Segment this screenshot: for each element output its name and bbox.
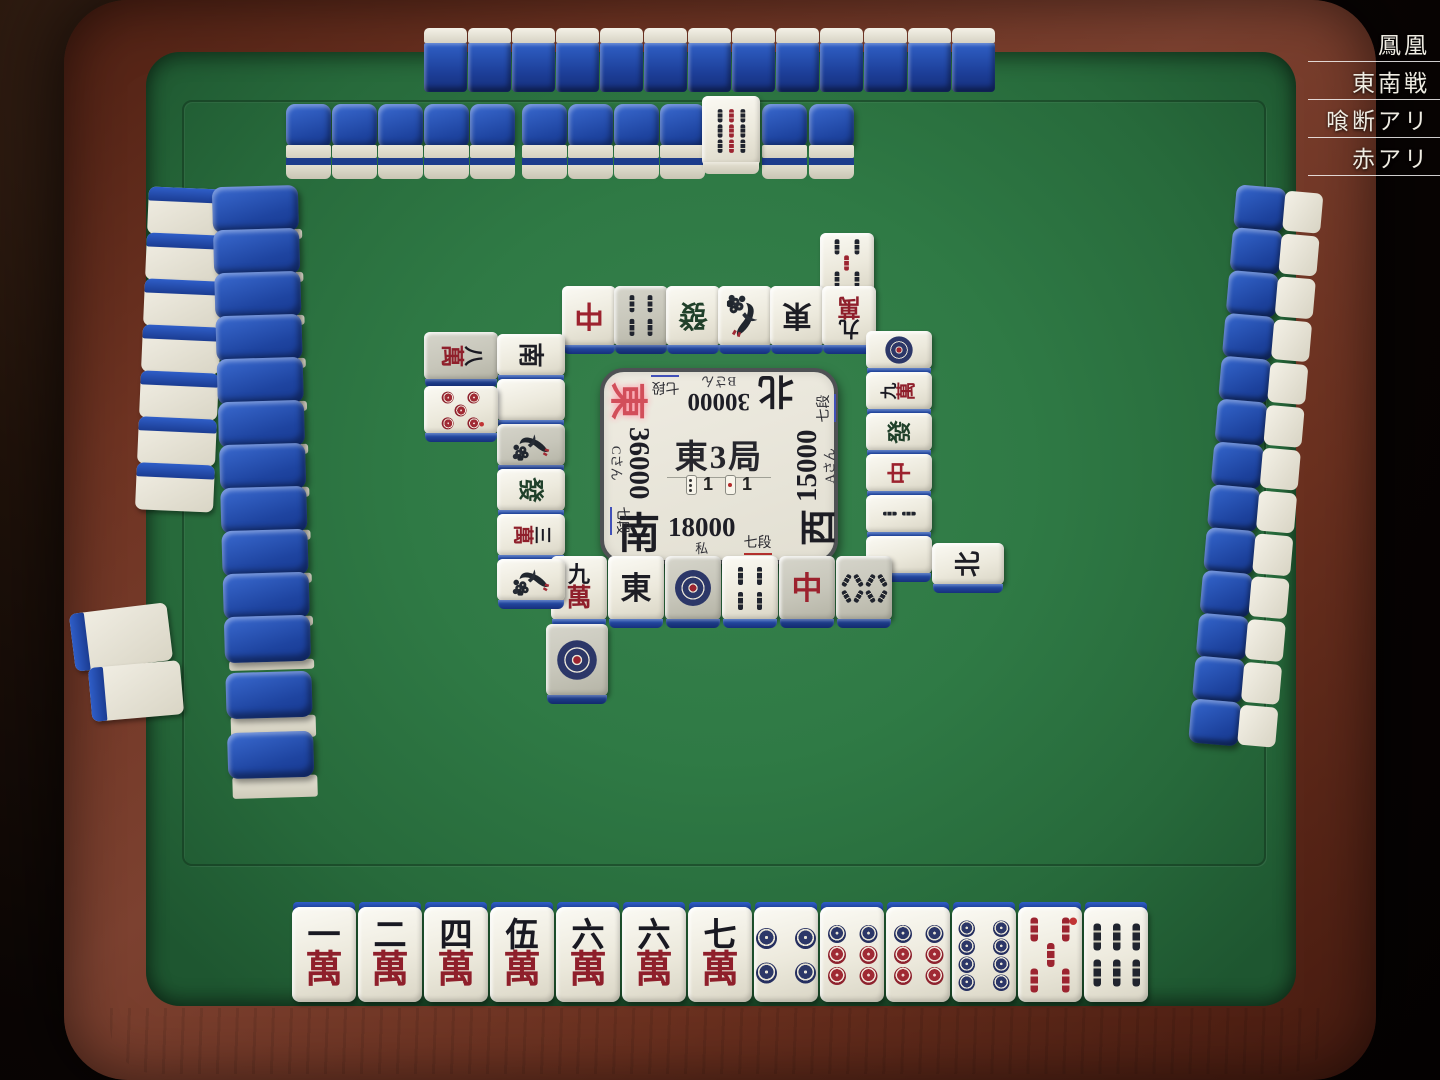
wall-tile-side [141,324,221,374]
discard-tile-1s [718,286,772,354]
discard-tile-F: 發 [666,286,720,354]
tile-face [424,386,498,434]
tile-face: 九萬 [866,372,932,410]
wall-tile-back [424,28,467,92]
tile-face: 伍萬 [490,907,554,1002]
discard-tile-S: 南 [497,334,565,384]
score-self: 18000 私 [668,514,736,555]
honba-stick-icon [686,475,697,495]
tile-face [722,556,778,620]
dead-wall-tile-back [614,104,659,192]
tile-front-edge [609,619,663,628]
hand-tile-5m[interactable]: 伍萬 [490,902,554,1002]
wall-tile-back [220,486,307,534]
discard-tile-C: 中 [562,286,616,354]
score-value: 30000 [687,389,750,414]
discard-tile-1p [665,556,721,628]
wall-tile-side [135,462,215,512]
tile-face: 發 [666,286,720,346]
score-panel: 東3局 1 1 南 18000 私 七段 北 30000 Bさん 七段 [600,368,838,564]
dealer-marker-east: 東 [610,382,644,420]
wall-tile-back [732,28,775,92]
player-name: Cさん [610,446,623,481]
rule-label-aka: 赤アリ [1308,138,1440,176]
discard-tile-1p [866,331,932,377]
tile-face [497,379,565,421]
wall-tile-back [644,28,687,92]
tile-face: 八萬 [424,332,498,380]
wall-tile-side [88,660,184,722]
tile-face [702,96,760,166]
player-info-west: 西 15000 Aさん 七段 [776,372,840,568]
dead-wall-tile-back [660,104,705,192]
wall-tile-side [139,370,219,420]
tile-face: 六萬 [622,907,686,1002]
tile-face: 中 [779,556,835,620]
riichi-count: 1 [742,474,752,495]
tile-face: 發 [866,413,932,451]
wall-left-main [212,185,314,776]
hand-tile-6m[interactable]: 六萬 [622,902,686,1002]
rank-badge: 七段 [744,536,772,555]
tile-front-edge [563,345,615,354]
dead-wall-tile-back [378,104,423,192]
wall-tile-back [776,28,819,92]
score-east: 36000 Cさん [610,427,653,500]
player-name: 私 [695,542,708,555]
discard-tile-2s [866,495,932,541]
wall-tile-back [225,671,312,719]
wall-tile-back [224,615,311,663]
tile-face [820,907,884,1002]
tile-face: 東 [608,556,664,620]
tile-face [614,286,668,346]
dora-indicator-tile-9s [702,96,760,174]
tile-face: 東 [770,286,824,346]
hand-tile-6m[interactable]: 六萬 [556,902,620,1002]
tile-front-edge [703,162,759,174]
honba-count: 1 [703,474,713,495]
dead-wall-tile-back [568,104,613,192]
wall-tile-back [952,28,995,92]
tile-front-edge [771,345,823,354]
discard-tile-1p [546,624,608,704]
discard-tile-4s [614,286,668,354]
tile-face: 一萬 [292,907,356,1002]
dead-wall-tile-back [470,104,515,192]
tile-face [497,424,565,466]
discard-tile-1s [497,424,565,474]
discard-tile-5pr [424,386,498,442]
rule-label-text: 鳳凰 [1378,26,1430,60]
wall-tile-back [217,357,304,405]
tile-face: 中 [866,454,932,492]
tile-front-edge [547,695,607,704]
riichi-stick-icon [725,475,736,495]
dead-wall-tile-back [424,104,469,192]
rule-label-lobby: 鳳凰 [1308,24,1440,62]
discard-tile-F: 發 [866,413,932,459]
wall-tile-back [219,443,306,491]
tile-front-edge [666,619,720,628]
hand-tile-4p[interactable] [754,902,818,1002]
wall-tile-back [468,28,511,92]
wall-tile-back [864,28,907,92]
wall-tile-back [221,529,308,577]
hand-tile-5sr[interactable] [1018,902,1082,1002]
dead-wall-tile-back [286,104,331,192]
wall-tile-back [688,28,731,92]
wall-tile-back [600,28,643,92]
tile-face: 二萬 [358,907,422,1002]
hand-tile-7m[interactable]: 七萬 [688,902,752,1002]
player-name: Bさん [701,375,736,388]
tile-face [1018,907,1082,1002]
rule-label-text: 喰断アリ [1326,102,1430,136]
tile-face [866,495,932,533]
hand-tile-6p[interactable] [886,902,950,1002]
rank-badge: 七段 [817,395,836,423]
tile-face [1084,907,1148,1002]
tile-face [866,331,932,369]
discard-tile-8s [836,556,892,628]
player-info-east: 東 36000 Cさん 七段 [606,372,670,568]
dead-wall-tile-back [762,104,807,192]
hand-tile-6s[interactable] [1084,902,1148,1002]
score-value: 36000 [624,427,653,500]
tile-front-edge [933,584,1003,593]
score-value: 15000 [793,430,822,503]
tile-face: 四萬 [424,907,488,1002]
tile-front-edge [615,345,667,354]
dead-wall-tile-back [332,104,377,192]
rule-label-text: 赤アリ [1352,140,1430,174]
tile-front-edge [667,345,719,354]
discard-tile-4s [722,556,778,628]
rule-label-kuitan: 喰断アリ [1308,100,1440,138]
discard-tile-8m: 八萬 [424,332,498,388]
wall-tile-back [218,400,305,448]
tile-face: 北 [932,543,1004,585]
tile-front-edge [780,619,834,628]
discard-tile-F: 發 [497,469,565,519]
tile-face [718,286,772,346]
player-name: Aさん [823,448,836,483]
discard-tile-E: 東 [770,286,824,354]
tile-front-edge [723,619,777,628]
wall-tile-back [908,28,951,92]
tile-front-edge [837,619,891,628]
score-value: 18000 [668,514,736,541]
wall-tile-back [820,28,863,92]
discard-tile-N: 北 [932,543,1004,593]
round-label: 東3局 [667,440,772,478]
discard-tile-H [497,379,565,429]
score-north: 30000 Bさん [687,375,750,414]
wall-tile-back [214,271,301,319]
mahjong-table: 鳳凰 東南戦 喰断アリ 赤アリ 九萬東中中發東九萬南發三萬八萬九萬發中北 東3局… [0,0,1440,1080]
tile-face: 中 [562,286,616,346]
wall-tile-back [215,314,302,362]
discard-tile-E: 東 [608,556,664,628]
hand-tile-8p[interactable] [952,902,1016,1002]
discard-tile-1s [497,559,565,609]
dead-wall-tile-back [809,104,854,192]
tile-front-edge [498,600,564,609]
tile-face: 六萬 [556,907,620,1002]
tile-face [497,559,565,601]
tile-face [886,907,950,1002]
wall-tile-back [512,28,555,92]
discard-tile-C: 中 [779,556,835,628]
rule-label-length: 東南戦 [1308,62,1440,100]
rank-badge: 七段 [610,507,629,535]
wall-tile-side [137,416,217,466]
wall-tile-back [227,731,314,779]
ruleset-panel: 鳳凰 東南戦 喰断アリ 赤アリ [1308,24,1440,176]
discard-tile-9m: 九萬 [866,372,932,418]
hand-tile-4m[interactable]: 四萬 [424,902,488,1002]
score-west: 15000 Aさん [793,430,836,503]
tile-face: 七萬 [688,907,752,1002]
wall-tile-back [1188,698,1284,751]
wall-tile-back [556,28,599,92]
hand-tile-2m[interactable]: 二萬 [358,902,422,1002]
dead-wall-tile-back [522,104,567,192]
discard-tile-C: 中 [866,454,932,500]
wall-tile-back [213,228,300,276]
tile-face [820,233,874,293]
wall-tile-back [223,572,310,620]
wall-tile-back [212,185,299,233]
wall-tile-side [143,278,223,328]
tile-front-edge [719,345,771,354]
hand-tile-6p[interactable] [820,902,884,1002]
tile-face [952,907,1016,1002]
seat-wind-west: 西 [803,509,836,546]
tile-front-edge [425,433,497,442]
tile-face: 發 [497,469,565,511]
hand-tile-1m[interactable]: 一萬 [292,902,356,1002]
tile-face [836,556,892,620]
tile-face [754,907,818,1002]
tile-face [665,556,721,620]
tile-face: 三萬 [497,514,565,556]
rule-label-text: 東南戦 [1352,64,1430,98]
tile-face: 南 [497,334,565,376]
tile-face [546,624,608,696]
